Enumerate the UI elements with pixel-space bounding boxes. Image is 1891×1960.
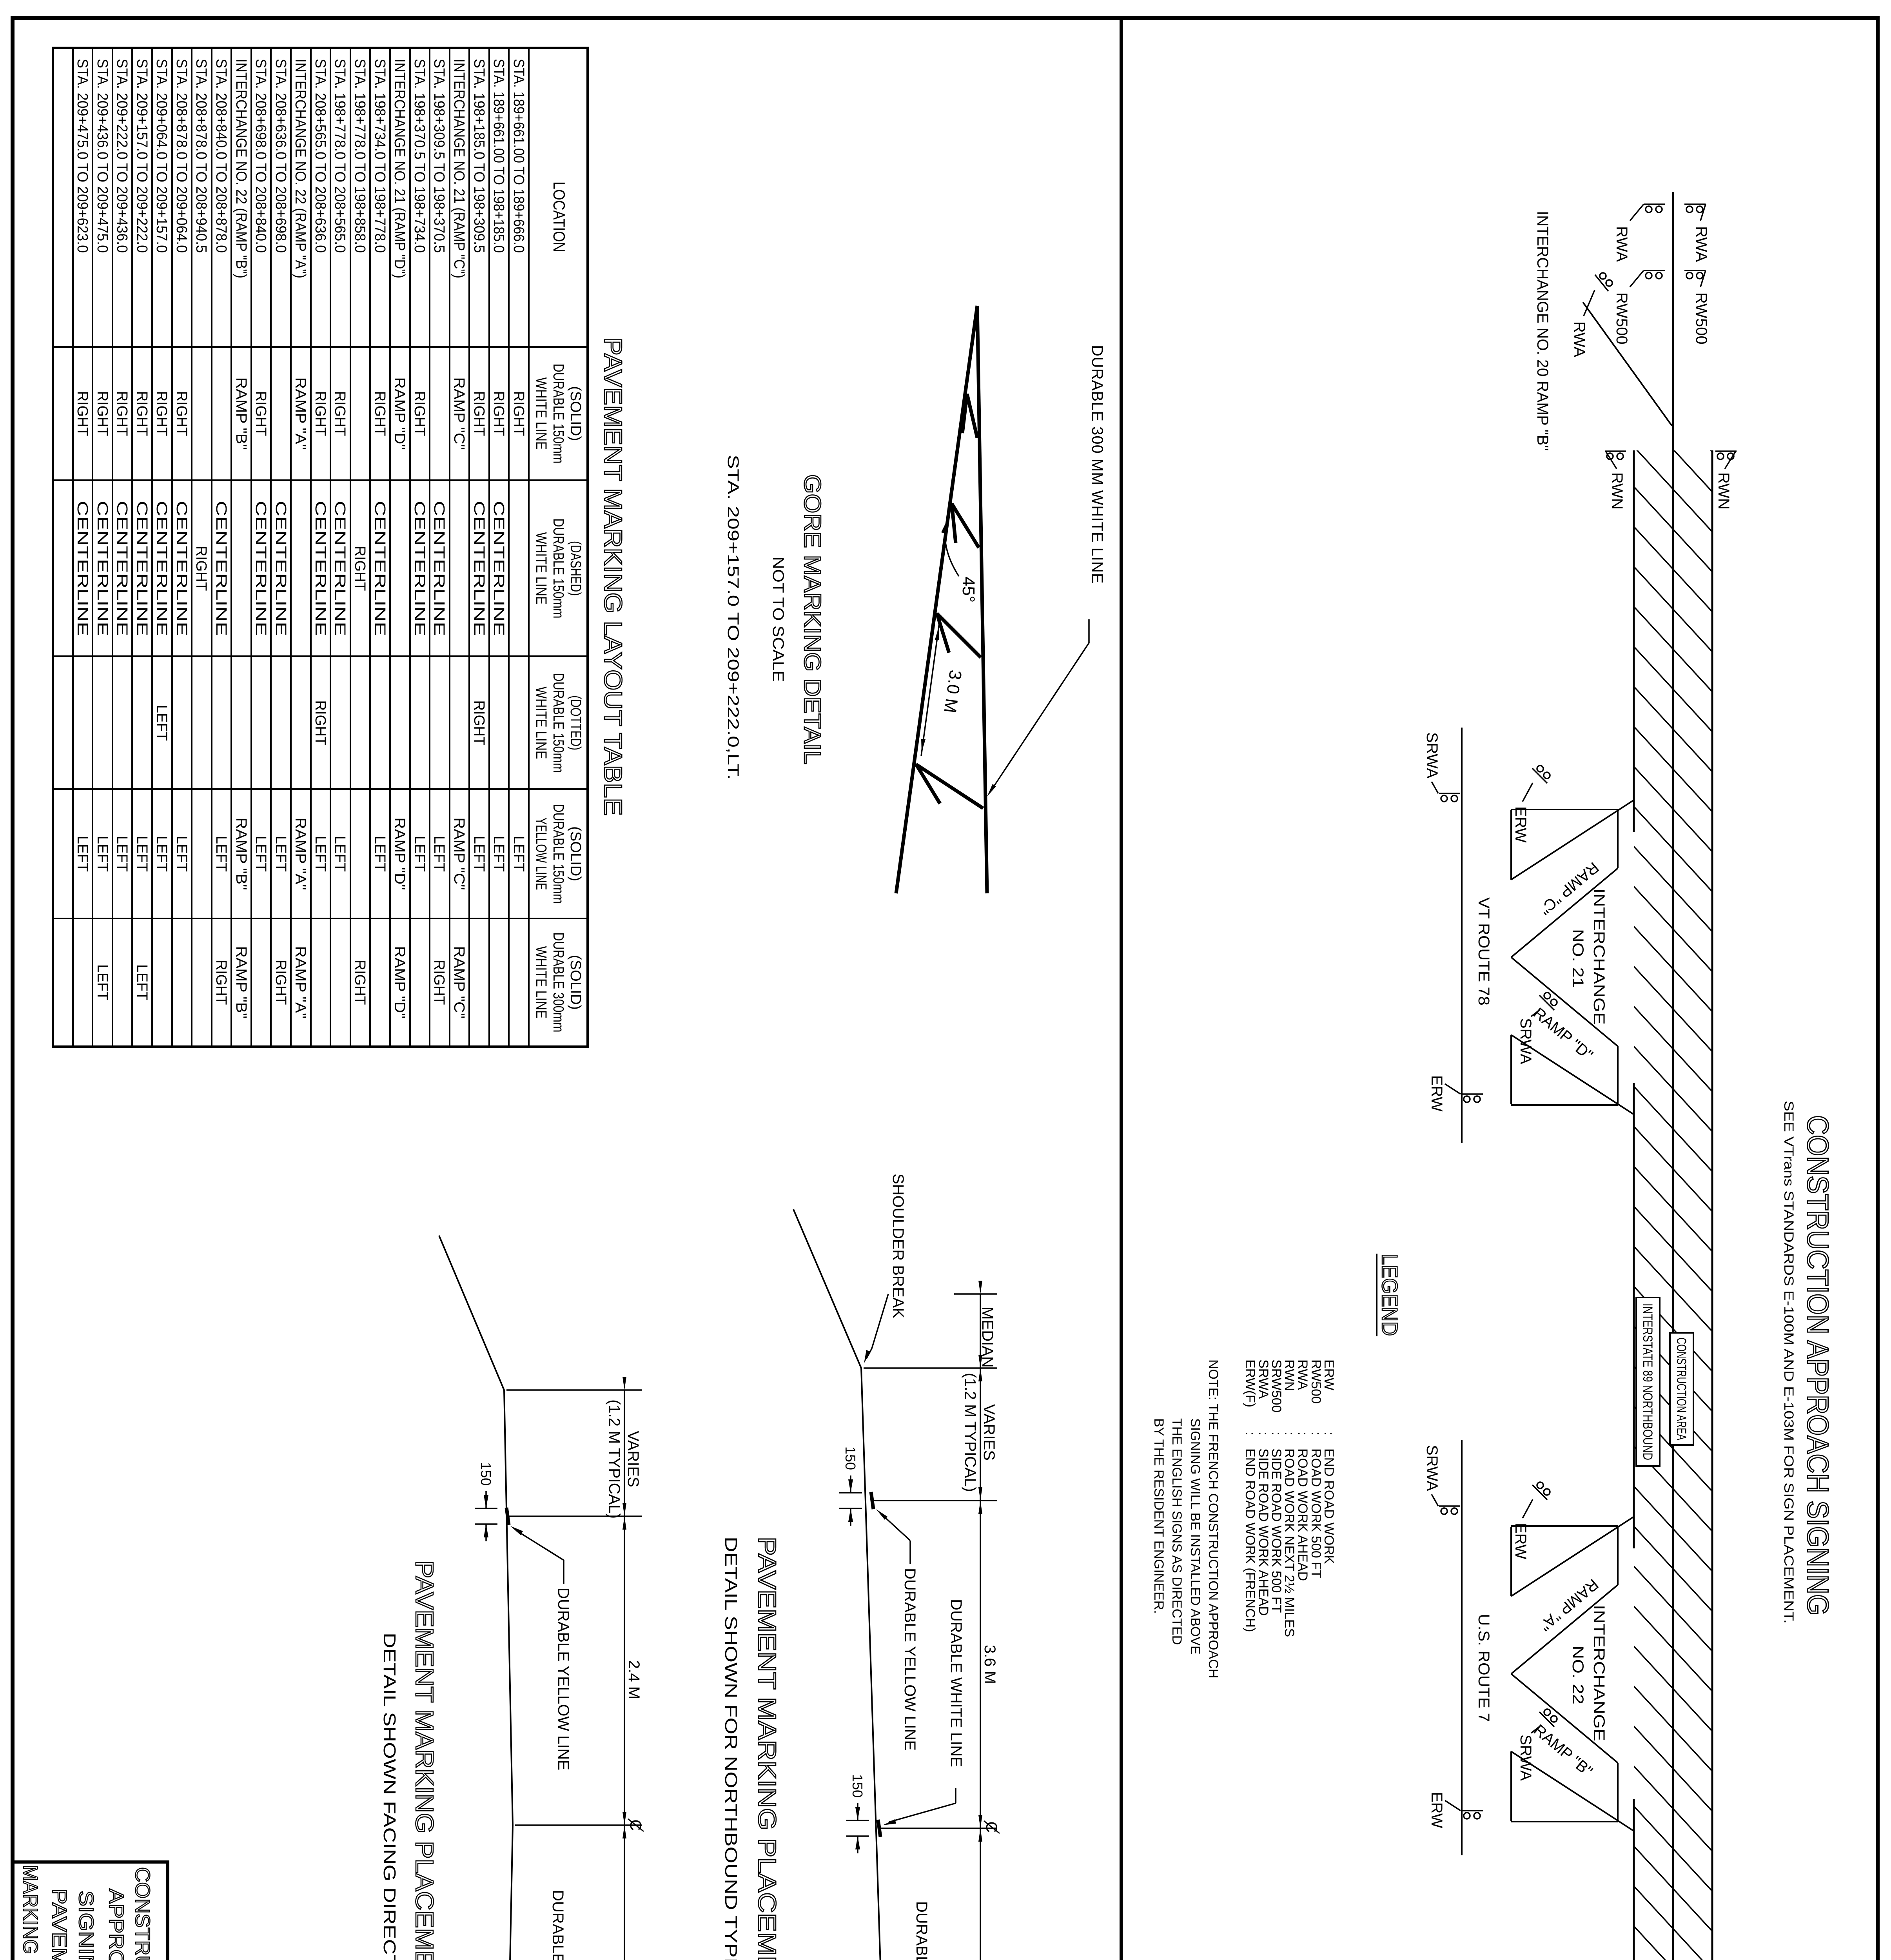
svg-text:CENTERLINE: CENTERLINE [431, 501, 447, 636]
svg-text:RAMP "B": RAMP "B" [233, 818, 249, 890]
svg-text:ERW: ERW [1512, 1523, 1529, 1559]
svg-text:SRWA: SRWA [1423, 1445, 1441, 1491]
svg-text:RIGHT: RIGHT [153, 391, 170, 436]
svg-text:RWN: RWN [1608, 472, 1626, 510]
svg-text:RAMP "C": RAMP "C" [451, 946, 467, 1019]
svg-text:GORE MARKING DETAIL: GORE MARKING DETAIL [799, 474, 826, 764]
svg-text:RAMP "B": RAMP "B" [233, 377, 249, 450]
svg-text:WHITE LINE: WHITE LINE [533, 377, 549, 450]
svg-text:ERW: ERW [1428, 1792, 1445, 1828]
svg-text:INTERCHANGE NO. 21 (RAMP "C"): INTERCHANGE NO. 21 (RAMP "C") [451, 59, 467, 278]
svg-text:RAMP "D": RAMP "D" [391, 818, 408, 890]
svg-text:ERW(F): ERW(F) [1243, 1359, 1258, 1407]
svg-text:WHITE LINE: WHITE LINE [533, 532, 549, 605]
svg-text:LEFT: LEFT [94, 964, 111, 1000]
svg-text:SRWA: SRWA [1517, 1018, 1534, 1064]
svg-text:LEFT: LEFT [94, 836, 111, 872]
svg-text:DURABLE WHITE LINE: DURABLE WHITE LINE [549, 1890, 566, 1960]
svg-text:DETAIL SHOWN FACING DIRECTION: DETAIL SHOWN FACING DIRECTION OF TRAVEL [380, 1633, 399, 1960]
svg-text:CONSTRUCTION APPROACH SIGNING: CONSTRUCTION APPROACH SIGNING [1801, 1115, 1834, 1615]
svg-text:STA. 208+840.0 TO 208+878.0: STA. 208+840.0 TO 208+878.0 [213, 59, 229, 253]
svg-text:(SOLID): (SOLID) [567, 386, 584, 441]
svg-text:45°: 45° [959, 577, 978, 603]
svg-text:PAVEMENT MARKING LAYOUT TABLE: PAVEMENT MARKING LAYOUT TABLE [599, 338, 627, 816]
svg-text:RIGHT: RIGHT [173, 391, 190, 436]
svg-text:VARIES: VARIES [624, 1431, 642, 1487]
svg-text:RIGHT: RIGHT [134, 391, 150, 436]
svg-text:WHITE LINE: WHITE LINE [533, 946, 549, 1019]
svg-text:CENTERLINE: CENTERLINE [153, 501, 170, 636]
svg-text:CENTERLINE: CENTERLINE [213, 501, 229, 636]
svg-text:INTERCHANGE NO. 22 (RAMP "A"): INTERCHANGE NO. 22 (RAMP "A") [292, 59, 309, 278]
svg-text:INTERCHANGE: INTERCHANGE [1590, 1605, 1608, 1741]
svg-text:RIGHT: RIGHT [471, 391, 487, 436]
svg-text:STA. 198+185.0 TO 198+309.5: STA. 198+185.0 TO 198+309.5 [471, 59, 487, 253]
svg-text:SRWA: SRWA [1423, 732, 1441, 779]
svg-text:SHOULDER BREAK: SHOULDER BREAK [889, 1174, 907, 1318]
svg-text:CENTERLINE: CENTERLINE [272, 501, 289, 636]
svg-text:STA. 208+698.0 TO 208+840.0: STA. 208+698.0 TO 208+840.0 [252, 59, 269, 253]
svg-text:NO. 22: NO. 22 [1569, 1646, 1586, 1704]
svg-text:RIGHT: RIGHT [272, 960, 289, 1005]
svg-text:BY THE RESIDENT ENGINEER.: BY THE RESIDENT ENGINEER. [1151, 1418, 1166, 1614]
svg-text:VT ROUTE 78: VT ROUTE 78 [1475, 897, 1492, 1005]
svg-text:LEFT: LEFT [372, 836, 388, 872]
svg-text:RAMP "A": RAMP "A" [292, 818, 309, 890]
svg-text:SIGNING &: SIGNING & [74, 1891, 97, 1960]
svg-text:CENTERLINE: CENTERLINE [252, 501, 269, 636]
svg-text:RAMP "A": RAMP "A" [292, 377, 309, 450]
svg-text:LEFT: LEFT [431, 836, 447, 872]
svg-text:RIGHT: RIGHT [411, 391, 428, 436]
svg-text:U.S. ROUTE 7: U.S. ROUTE 7 [1475, 1614, 1492, 1722]
svg-text:150: 150 [478, 1462, 494, 1486]
svg-text:150: 150 [842, 1446, 858, 1470]
svg-text:(1.2 M TYPICAL): (1.2 M TYPICAL) [962, 1373, 979, 1492]
svg-text:LEFT: LEFT [134, 836, 150, 872]
svg-text:RAMP "A": RAMP "A" [292, 946, 309, 1019]
svg-text:CONSTRUCTION: CONSTRUCTION [131, 1867, 154, 1960]
svg-text:STA. 208+878.0 TO 208+940.5: STA. 208+878.0 TO 208+940.5 [193, 59, 209, 253]
svg-text:RAMP "D": RAMP "D" [391, 946, 408, 1019]
svg-text:RIGHT: RIGHT [471, 701, 487, 746]
svg-text:CENTERLINE: CENTERLINE [173, 501, 190, 636]
svg-text:ROAD WORK AHEAD: ROAD WORK AHEAD [1295, 1448, 1310, 1581]
svg-text:LEFT: LEFT [272, 836, 289, 872]
svg-text:ERW: ERW [1512, 806, 1529, 843]
svg-text:RIGHT: RIGHT [213, 960, 229, 1005]
svg-text:LEFT: LEFT [114, 836, 130, 872]
svg-text:LEFT: LEFT [312, 836, 328, 872]
svg-text:STA. 189+661.00 TO 189+666.0: STA. 189+661.00 TO 189+666.0 [510, 59, 527, 253]
svg-text:STA. 198+734.0 TO 198+778.0: STA. 198+734.0 TO 198+778.0 [372, 59, 388, 253]
svg-text:STA. 198+778.0 TO 198+858.0: STA. 198+778.0 TO 198+858.0 [352, 59, 368, 253]
svg-text:DURABLE YELLOW LINE: DURABLE YELLOW LINE [555, 1588, 572, 1770]
svg-text:RIGHT: RIGHT [114, 391, 130, 436]
svg-text::: : [1308, 1432, 1323, 1435]
svg-text:STA. 208+878.0 TO 209+064.0: STA. 208+878.0 TO 209+064.0 [173, 59, 190, 253]
svg-text:CENTERLINE: CENTERLINE [134, 501, 150, 636]
svg-text:(SOLID): (SOLID) [567, 955, 584, 1010]
svg-text:CONSTRUCTION AREA: CONSTRUCTION AREA [1674, 1338, 1689, 1440]
svg-text:RIGHT: RIGHT [312, 391, 328, 436]
svg-text:LEGEND: LEGEND [1377, 1254, 1402, 1336]
svg-text:INTERCHANGE NO. 22 (RAMP "B"): INTERCHANGE NO. 22 (RAMP "B") [233, 59, 249, 278]
svg-text:SRWA: SRWA [1517, 1735, 1534, 1781]
svg-text:RAMP "B": RAMP "B" [233, 946, 249, 1019]
svg-text:RIGHT: RIGHT [332, 391, 348, 436]
svg-text:CENTERLINE: CENTERLINE [411, 501, 428, 636]
svg-text:RIGHT: RIGHT [94, 391, 111, 436]
svg-text:PAVEMENT MARKING PLACEMENT DET: PAVEMENT MARKING PLACEMENT DETAIL - MAIN… [753, 1537, 781, 1960]
svg-text:RAMP "B": RAMP "B" [1530, 1721, 1596, 1780]
svg-text:STA. 189+661.00 TO 198+185.0: STA. 189+661.00 TO 198+185.0 [490, 59, 507, 253]
svg-text:RWN: RWN [1715, 472, 1732, 510]
svg-text:LEFT: LEFT [510, 836, 527, 872]
svg-text:STA. 209+222.0 TO 209+436.0: STA. 209+222.0 TO 209+436.0 [114, 59, 130, 253]
svg-text:RW500: RW500 [1613, 292, 1630, 345]
svg-text:STA. 209+157.0 TO 209+222.0: STA. 209+157.0 TO 209+222.0 [134, 59, 150, 253]
svg-text:SIGNING WILL BE INSTALLED ABOV: SIGNING WILL BE INSTALLED ABOVE [1188, 1418, 1203, 1655]
svg-text:SIDE ROAD WORK AHEAD: SIDE ROAD WORK AHEAD [1256, 1448, 1271, 1616]
svg-text:RAMP "D": RAMP "D" [1530, 1004, 1596, 1063]
svg-text:STA. 198+370.5 TO 198+734.0: STA. 198+370.5 TO 198+734.0 [411, 59, 428, 253]
svg-text:ERW: ERW [1428, 1075, 1445, 1112]
svg-text:YELLOW LINE: YELLOW LINE [533, 818, 549, 890]
svg-text:LEFT: LEFT [490, 836, 507, 872]
svg-text:2.4 M: 2.4 M [625, 1660, 642, 1699]
svg-text:RIGHT: RIGHT [352, 960, 368, 1005]
svg-text:PAVEMENT: PAVEMENT [48, 1889, 71, 1960]
svg-text:RIGHT: RIGHT [252, 391, 269, 436]
svg-text::: : [1243, 1432, 1258, 1435]
svg-text:CENTERLINE: CENTERLINE [94, 501, 111, 636]
svg-text:DURABLE 300mm: DURABLE 300mm [550, 933, 566, 1033]
svg-text:STA. 208+636.0 TO 208+698.0: STA. 208+636.0 TO 208+698.0 [272, 59, 289, 253]
svg-text:LEFT: LEFT [153, 836, 170, 872]
svg-text:NO. 21: NO. 21 [1569, 929, 1586, 988]
svg-text:STA. 209+436.0 TO 209+475.0: STA. 209+436.0 TO 209+475.0 [94, 59, 111, 253]
svg-text:STA. 198+309.5 TO 198+370.5: STA. 198+309.5 TO 198+370.5 [431, 59, 447, 253]
svg-text:PAVEMENT MARKING PLACEMENT DET: PAVEMENT MARKING PLACEMENT DETAIL - RAMP… [410, 1561, 439, 1960]
svg-text:DURABLE 150mm: DURABLE 150mm [550, 364, 566, 464]
svg-text:CENTERLINE: CENTERLINE [114, 501, 130, 636]
svg-text:RW500: RW500 [1308, 1359, 1323, 1404]
svg-text:LEFT: LEFT [252, 836, 269, 872]
svg-text:LEFT: LEFT [471, 836, 487, 872]
svg-text:RIGHT: RIGHT [510, 391, 527, 436]
svg-text:CENTERLINE: CENTERLINE [332, 501, 348, 636]
svg-text:NOT TO SCALE: NOT TO SCALE [769, 557, 787, 682]
svg-text:ROAD WORK 500 FT: ROAD WORK 500 FT [1308, 1448, 1323, 1578]
svg-text:LEFT: LEFT [74, 836, 91, 872]
svg-text:RIGHT: RIGHT [74, 391, 91, 436]
svg-text:STA. 209+475.0 TO 209+623.0: STA. 209+475.0 TO 209+623.0 [74, 59, 91, 253]
svg-text:SEE VTrans STANDARDS E-100M AN: SEE VTrans STANDARDS E-100M AND E-103M F… [1781, 1101, 1796, 1624]
svg-text:LOCATION: LOCATION [550, 181, 568, 252]
svg-text:RW500: RW500 [1693, 292, 1710, 345]
svg-text:DURABLE 150mm: DURABLE 150mm [550, 673, 566, 773]
svg-text:RWA: RWA [1295, 1359, 1310, 1390]
svg-text:THE ENGLISH SIGNS AS DIRECTED: THE ENGLISH SIGNS AS DIRECTED [1169, 1418, 1184, 1645]
svg-text:RIGHT: RIGHT [372, 391, 388, 436]
svg-text:STA. 209+064.0 TO 209+157.0: STA. 209+064.0 TO 209+157.0 [153, 59, 170, 253]
svg-text:RAMP "C": RAMP "C" [451, 818, 467, 890]
svg-text:(DASHED): (DASHED) [567, 541, 584, 596]
svg-text:LEFT: LEFT [134, 964, 150, 1000]
svg-text:CENTERLINE: CENTERLINE [312, 501, 328, 636]
svg-text:LEFT: LEFT [213, 836, 229, 872]
svg-text:LEFT: LEFT [332, 836, 348, 872]
svg-text:RIGHT: RIGHT [431, 960, 447, 1005]
svg-text:RIGHT: RIGHT [193, 546, 209, 591]
svg-text:WHITE LINE: WHITE LINE [533, 687, 549, 759]
svg-text:SRWA: SRWA [1256, 1359, 1271, 1399]
svg-text:VARIES: VARIES [980, 1404, 998, 1461]
svg-text:RWA: RWA [1693, 226, 1710, 262]
svg-text:RWA: RWA [1613, 226, 1630, 262]
svg-text:APPROACH: APPROACH [105, 1889, 127, 1960]
svg-text:DURABLE 300 MM WHITE LINE: DURABLE 300 MM WHITE LINE [1089, 345, 1106, 584]
svg-text:LEFT: LEFT [411, 836, 428, 872]
svg-text:150: 150 [849, 1774, 866, 1798]
svg-text:STA. 198+778.0 TO 208+565.0: STA. 198+778.0 TO 208+565.0 [332, 59, 348, 253]
svg-text:MEDIAN: MEDIAN [979, 1307, 996, 1368]
svg-text:CENTERLINE: CENTERLINE [471, 501, 487, 636]
svg-text:RIGHT: RIGHT [312, 701, 328, 746]
svg-text:LEFT: LEFT [153, 705, 170, 741]
svg-text:LEFT: LEFT [173, 836, 190, 872]
svg-text:RAMP "C": RAMP "C" [451, 377, 467, 450]
svg-text:STA. 208+565.0 TO 208+636.0: STA. 208+565.0 TO 208+636.0 [312, 59, 328, 253]
svg-text:MARKING DETAILS: MARKING DETAILS [19, 1865, 42, 1960]
svg-text:RIGHT: RIGHT [352, 546, 368, 591]
svg-text:CENTERLINE: CENTERLINE [490, 501, 507, 636]
svg-text:INTERCHANGE NO. 20 RAMP "B": INTERCHANGE NO. 20 RAMP "B" [1534, 211, 1551, 451]
svg-text:DURABLE WHITE LINE: DURABLE WHITE LINE [913, 1901, 930, 1960]
svg-text:DURABLE WHITE LINE: DURABLE WHITE LINE [947, 1599, 965, 1767]
svg-text:DURABLE YELLOW LINE: DURABLE YELLOW LINE [901, 1568, 918, 1751]
svg-text:DETAIL SHOWN FOR NORTHBOUND TY: DETAIL SHOWN FOR NORTHBOUND TYPICAL FACI… [721, 1537, 740, 1960]
svg-text:END ROAD WORK (FRENCH): END ROAD WORK (FRENCH) [1243, 1448, 1258, 1632]
svg-text:3.6 M: 3.6 M [981, 1645, 998, 1684]
svg-text:RWA: RWA [1571, 321, 1588, 357]
svg-text:(DOTTED): (DOTTED) [567, 695, 584, 750]
svg-text:DURABLE 150mm: DURABLE 150mm [550, 804, 566, 904]
svg-text:DURABLE 150mm: DURABLE 150mm [550, 519, 566, 619]
svg-text:INTERCHANGE: INTERCHANGE [1590, 888, 1608, 1025]
svg-text:STA. 209+157.0 TO 209+222.0,LT: STA. 209+157.0 TO 209+222.0,LT. [724, 455, 742, 780]
svg-text:3.0 M: 3.0 M [940, 669, 965, 714]
svg-text:INTERSTATE 89 NORTHBOUND: INTERSTATE 89 NORTHBOUND [1640, 1303, 1655, 1460]
svg-text:(SOLID): (SOLID) [567, 826, 584, 881]
svg-text::: : [1256, 1432, 1271, 1435]
svg-text:CENTERLINE: CENTERLINE [372, 501, 388, 636]
svg-text:RIGHT: RIGHT [490, 391, 507, 436]
svg-text:NOTE: THE FRENCH CONSTRUCTION: NOTE: THE FRENCH CONSTRUCTION APPROACH [1206, 1359, 1221, 1679]
svg-text:CENTERLINE: CENTERLINE [74, 501, 91, 636]
svg-text:RAMP "D": RAMP "D" [391, 377, 408, 450]
svg-text::: : [1295, 1432, 1310, 1435]
svg-text:(1.2 M TYPICAL): (1.2 M TYPICAL) [606, 1399, 623, 1519]
svg-text:INTERCHANGE NO. 21 (RAMP "D"): INTERCHANGE NO. 21 (RAMP "D") [391, 59, 408, 278]
